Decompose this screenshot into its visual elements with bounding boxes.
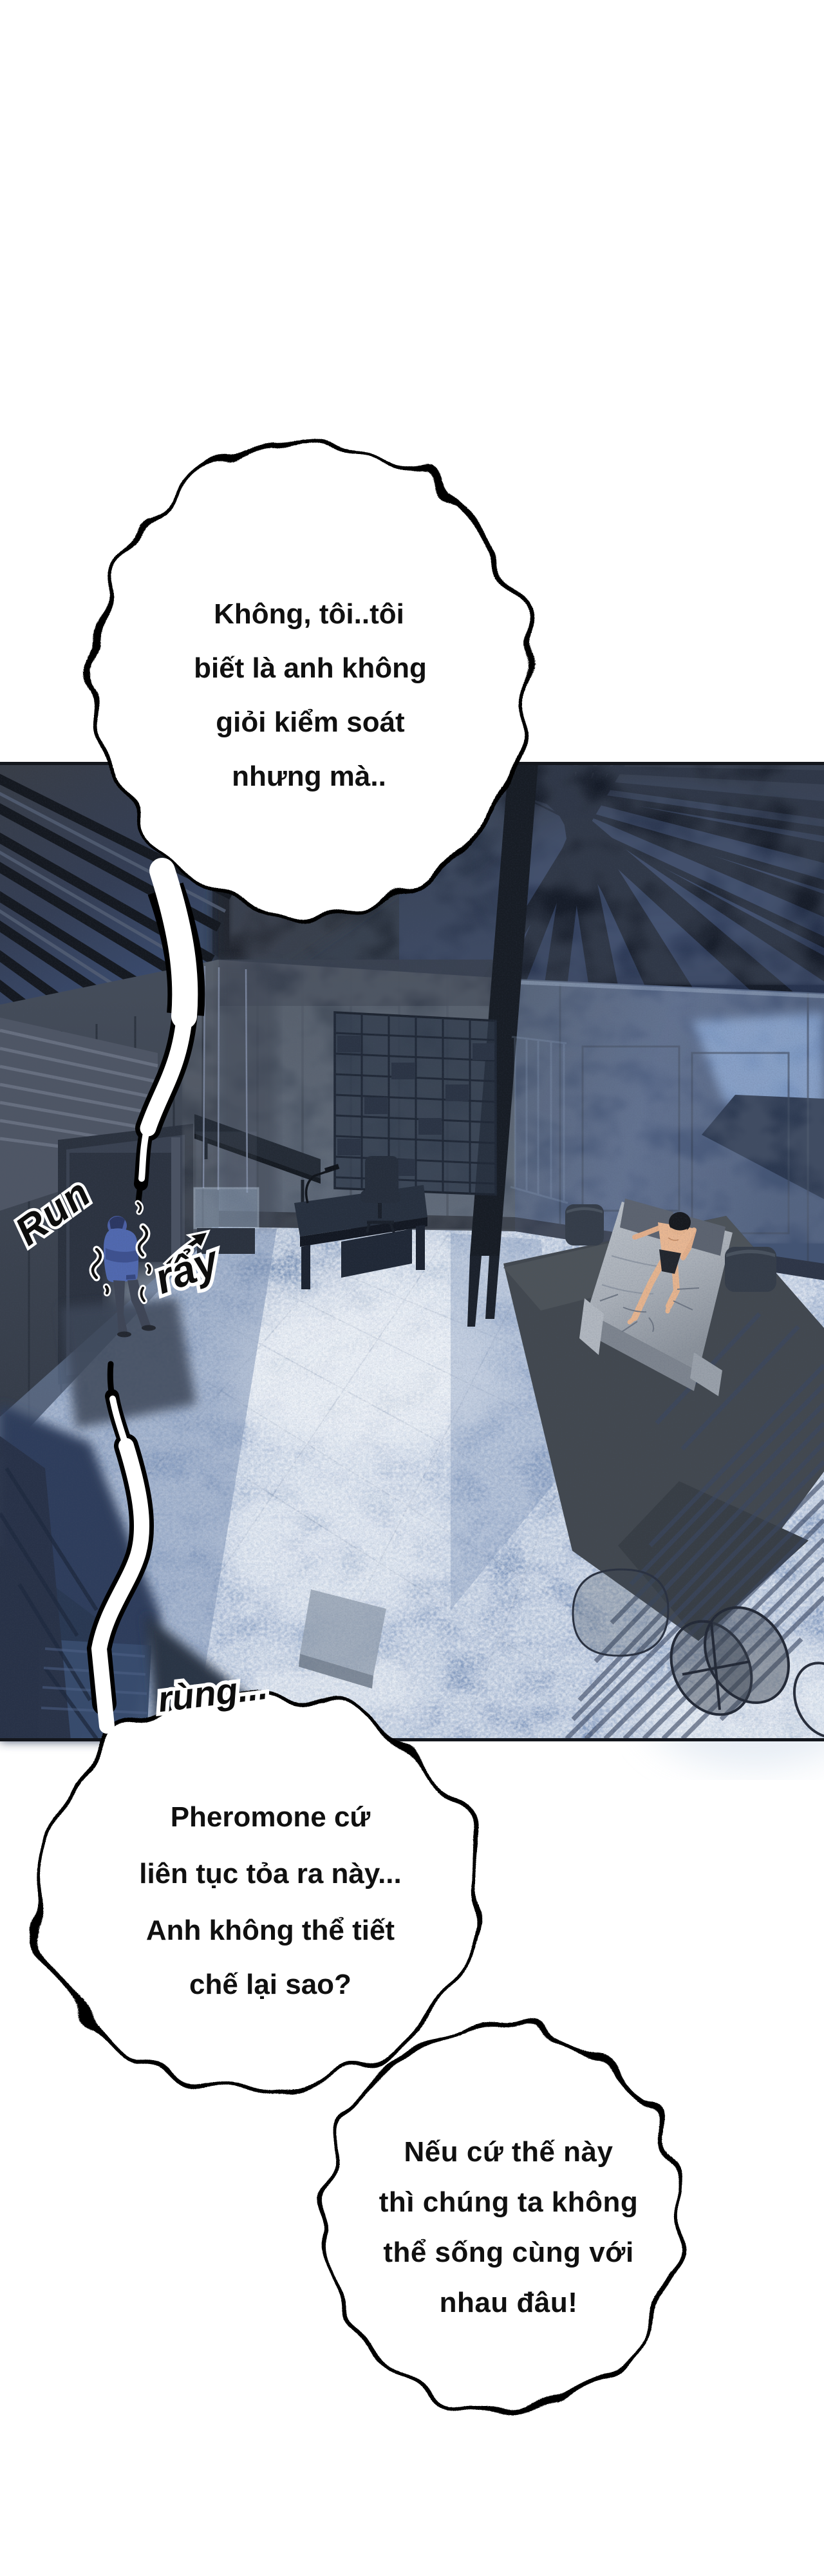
svg-text:biết là anh không: biết là anh không	[194, 652, 427, 684]
svg-text:nhau đâu!: nhau đâu!	[440, 2287, 578, 2318]
svg-text:Nếu cứ thế này: Nếu cứ thế này	[404, 2136, 613, 2168]
svg-text:giỏi kiểm soát: giỏi kiểm soát	[216, 706, 405, 738]
svg-text:chế lại sao?: chế lại sao?	[189, 1969, 351, 2000]
svg-text:thể sống cùng với: thể sống cùng với	[383, 2237, 633, 2268]
svg-text:Pheromone cứ: Pheromone cứ	[171, 1801, 371, 1833]
svg-text:Không, tôi..tôi: Không, tôi..tôi	[214, 598, 404, 630]
svg-text:Anh không thể tiết: Anh không thể tiết	[146, 1915, 395, 1946]
svg-text:thì chúng ta không: thì chúng ta không	[379, 2186, 639, 2218]
svg-text:nhưng mà..: nhưng mà..	[232, 761, 386, 792]
svg-text:liên tục tỏa ra này...: liên tục tỏa ra này...	[139, 1858, 402, 1889]
